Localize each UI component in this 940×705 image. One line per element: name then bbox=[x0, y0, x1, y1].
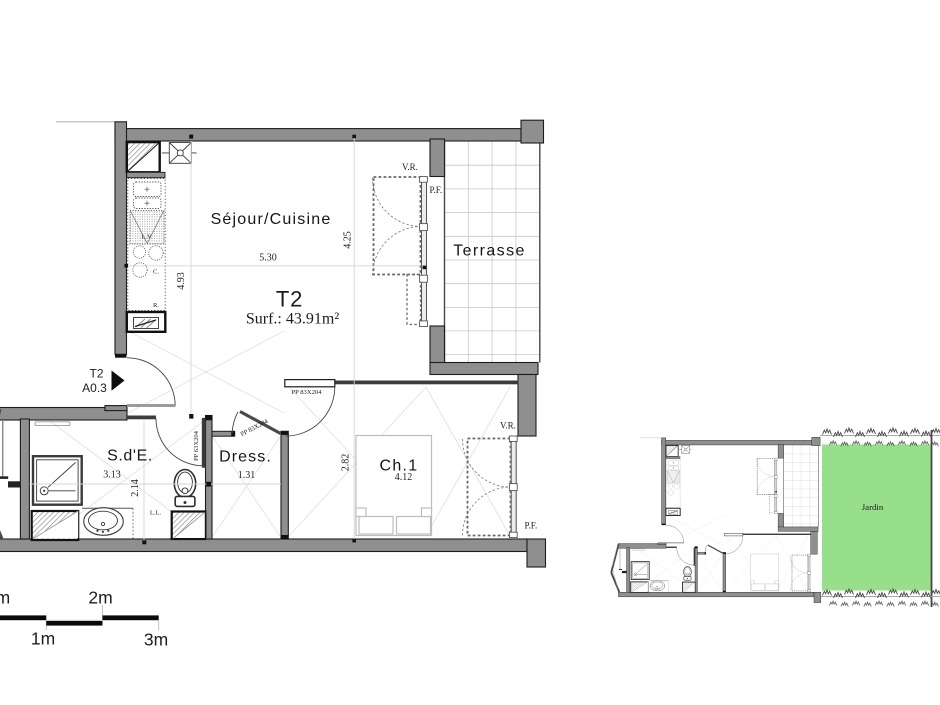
svg-text:PP 63X204: PP 63X204 bbox=[193, 430, 200, 461]
svg-text:PP 83X204: PP 83X204 bbox=[292, 389, 323, 396]
svg-text:2m: 2m bbox=[88, 588, 112, 608]
svg-text:L.V.: L.V. bbox=[141, 234, 153, 241]
svg-text:Dress.: Dress. bbox=[219, 449, 272, 466]
svg-text:Séjour/Cuisine: Séjour/Cuisine bbox=[211, 211, 332, 228]
svg-text:4.93: 4.93 bbox=[176, 272, 187, 290]
svg-text:4.12: 4.12 bbox=[395, 472, 413, 483]
svg-text:Surf.: 43.91m²: Surf.: 43.91m² bbox=[246, 311, 339, 328]
svg-text:T2: T2 bbox=[276, 287, 303, 312]
svg-text:Jardin: Jardin bbox=[862, 502, 884, 512]
svg-text:V.R.: V.R. bbox=[402, 162, 418, 172]
svg-text:A0.3: A0.3 bbox=[82, 381, 107, 395]
svg-text:P.F.: P.F. bbox=[430, 185, 443, 195]
svg-text:S.d'E.: S.d'E. bbox=[107, 448, 153, 465]
svg-text:3.13: 3.13 bbox=[103, 470, 121, 481]
svg-text:L.L.: L.L. bbox=[150, 510, 162, 517]
svg-text:Terrasse: Terrasse bbox=[453, 243, 526, 260]
svg-text:R.: R. bbox=[153, 302, 159, 309]
svg-text:3m: 3m bbox=[144, 630, 168, 650]
svg-text:T2: T2 bbox=[89, 367, 103, 381]
svg-text:2.14: 2.14 bbox=[130, 479, 141, 497]
svg-text:1.31: 1.31 bbox=[238, 470, 256, 481]
svg-text:C.: C. bbox=[153, 269, 159, 276]
svg-text:V.R.: V.R. bbox=[500, 421, 516, 431]
svg-text:P.F.: P.F. bbox=[525, 521, 538, 531]
svg-text:1m: 1m bbox=[31, 629, 55, 649]
svg-text:0m: 0m bbox=[0, 588, 10, 608]
svg-text:4.25: 4.25 bbox=[343, 231, 354, 249]
svg-text:5.30: 5.30 bbox=[259, 253, 277, 264]
svg-text:2.82: 2.82 bbox=[341, 454, 352, 472]
